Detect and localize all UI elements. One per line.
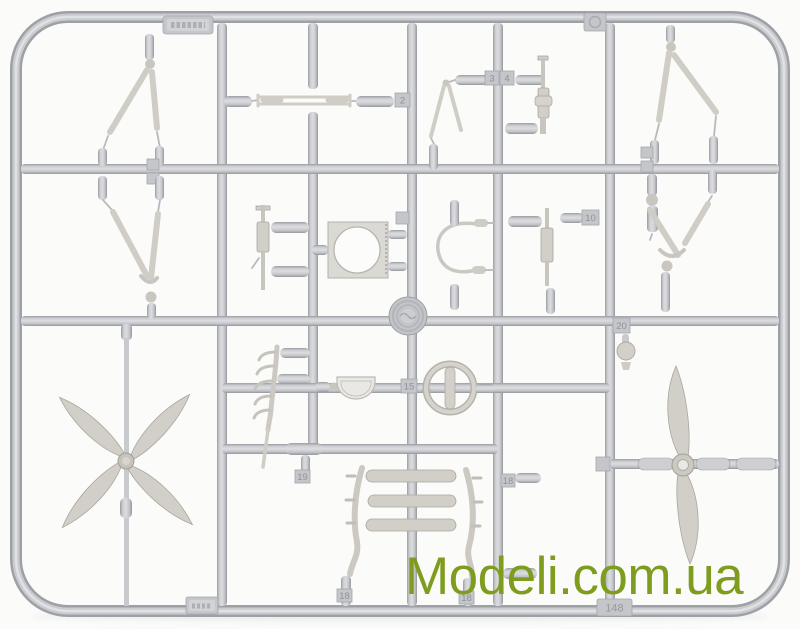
brand-medallion — [389, 297, 427, 335]
part-number-tab-20: 20 — [613, 318, 630, 333]
part-number-tab-15: 15 — [401, 379, 417, 393]
sprue-photo: 2 3 4 — [0, 0, 800, 629]
runner-vertical-4 — [493, 23, 503, 606]
part-number-label: 2 — [400, 96, 405, 107]
runner-vertical-1 — [217, 23, 227, 606]
part-number-label: 18 — [339, 591, 350, 602]
part-number-label: 20 — [616, 321, 627, 332]
runner-vertical-2-lower — [308, 112, 318, 454]
cowling-opening — [334, 227, 380, 273]
runner-vertical-2-upper — [308, 23, 318, 89]
runner-horizontal-1 — [21, 164, 779, 174]
part-number-label: 4 — [504, 74, 509, 85]
part-number-tab-2: 2 — [395, 93, 410, 107]
part-number-tab-3: 3 — [485, 71, 499, 85]
part-number-tab-19: 19 — [295, 470, 310, 483]
gate-tab-top-right — [584, 13, 606, 31]
photo-canvas: 2 3 4 — [0, 0, 800, 629]
watermark-text: Modeli.com.ua — [405, 547, 744, 606]
part-number-label: 19 — [297, 472, 308, 483]
part-number-label: 3 — [489, 74, 494, 85]
part-number-label: 15 — [404, 382, 415, 393]
part-number-tab-18-mid: 18 — [501, 474, 515, 487]
part-number-tab-4: 4 — [500, 71, 514, 85]
brand-tab-top — [163, 16, 213, 34]
part-number-label: 10 — [585, 213, 596, 224]
brand-tab-bottom — [186, 597, 218, 614]
part-number-label: 18 — [503, 476, 514, 487]
part-number-tab-18-left: 18 — [337, 589, 352, 602]
runner-vertical-5 — [605, 23, 615, 606]
